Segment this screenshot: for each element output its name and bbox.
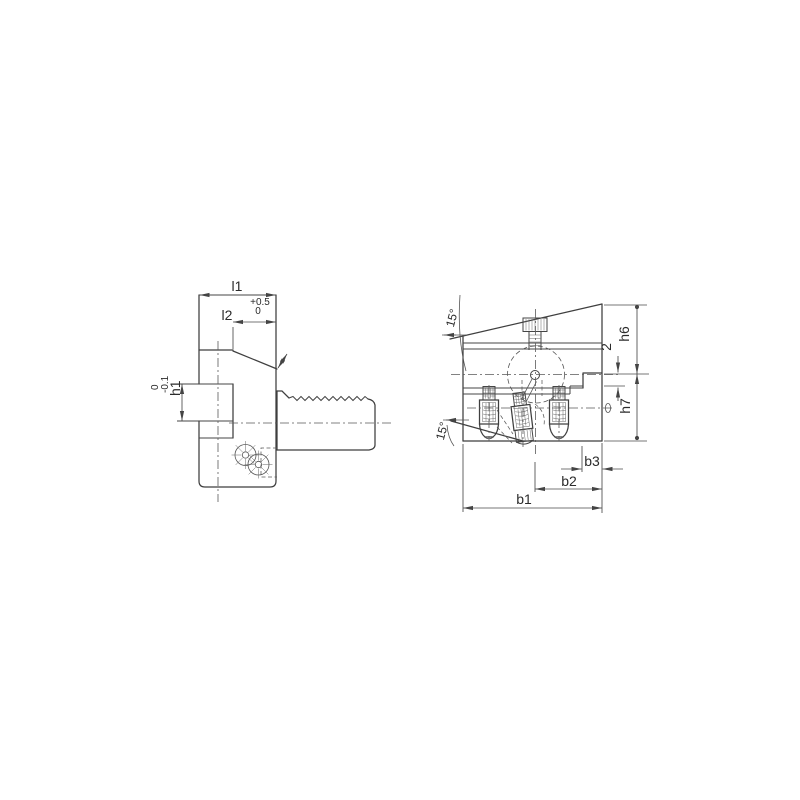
side-view: l1 l2 +0.5 0 h1 0 -0.1 (150, 278, 394, 502)
wedge-annotation-arrow (278, 354, 287, 368)
dim-label-h7: h7 (617, 398, 633, 414)
dim-label-2: 2 (598, 343, 614, 351)
dim-label-l2: l2 (222, 307, 233, 323)
thread-profile (289, 397, 368, 401)
technical-drawing: l1 l2 +0.5 0 h1 0 -0.1 (0, 0, 800, 800)
front-view: 15° 15° h6 h7 2 (433, 295, 649, 513)
h1-tolerance-lower: -0.1 (160, 375, 171, 393)
dim-label-b1: b1 (516, 491, 532, 507)
angle-label-top: 15° (443, 307, 461, 328)
clamp-wedge-edge (233, 351, 277, 369)
center-bore (531, 371, 540, 380)
clamp-screw-detail (232, 441, 278, 479)
angle-label-bottom: 15° (433, 420, 451, 441)
clamping-screws (480, 387, 569, 446)
dim-label-b2: b2 (561, 473, 577, 489)
drawing-canvas: l1 l2 +0.5 0 h1 0 -0.1 (0, 0, 800, 800)
dim-label-l1: l1 (232, 278, 243, 294)
front-view-centerlines (451, 309, 620, 456)
shank (277, 391, 375, 450)
l2-tolerance-lower: 0 (255, 306, 261, 317)
dim-label-h6: h6 (616, 326, 632, 342)
clamp-bolt (523, 318, 547, 350)
dim-label-b3: b3 (584, 453, 600, 469)
side-view-outline (177, 295, 277, 487)
side-view-centerlines (218, 341, 394, 502)
